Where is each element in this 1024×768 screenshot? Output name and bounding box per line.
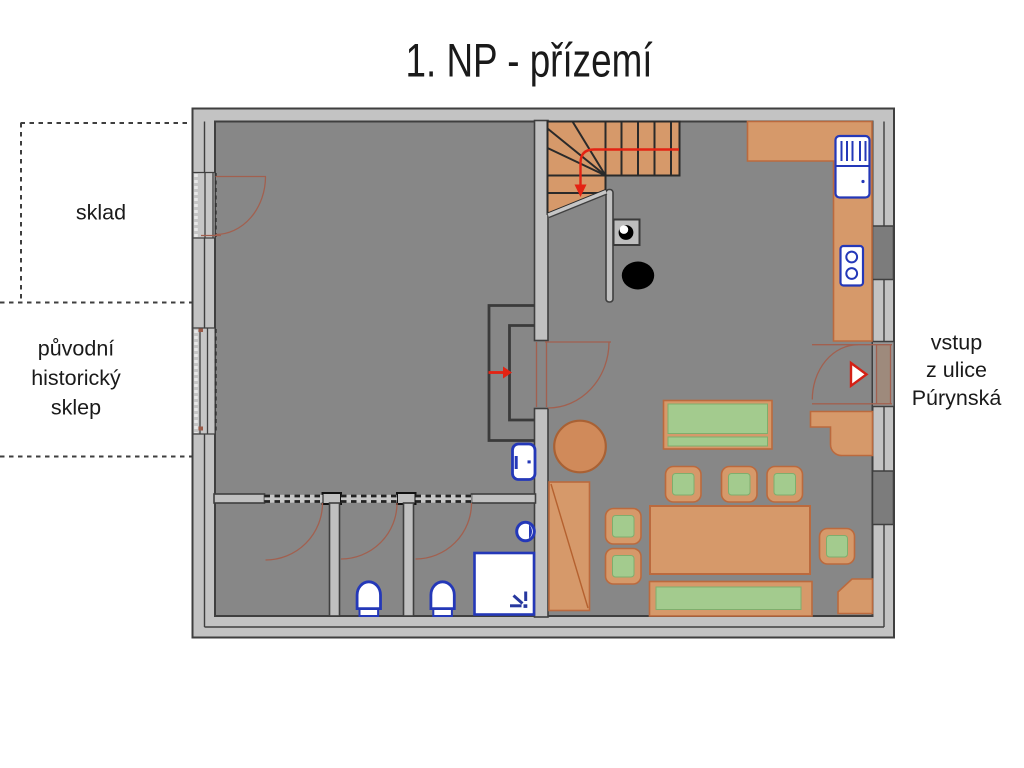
svg-text:vstup: vstup	[931, 331, 982, 355]
svg-text:sklep: sklep	[51, 396, 101, 420]
svg-text:původní: původní	[38, 337, 115, 361]
svg-text:Púrynská: Púrynská	[912, 386, 1002, 410]
svg-text:1. NP - přízemí: 1. NP - přízemí	[406, 34, 653, 87]
svg-text:sklad: sklad	[76, 201, 126, 225]
svg-text:z ulice: z ulice	[926, 358, 987, 382]
svg-text:historický: historický	[31, 366, 121, 390]
